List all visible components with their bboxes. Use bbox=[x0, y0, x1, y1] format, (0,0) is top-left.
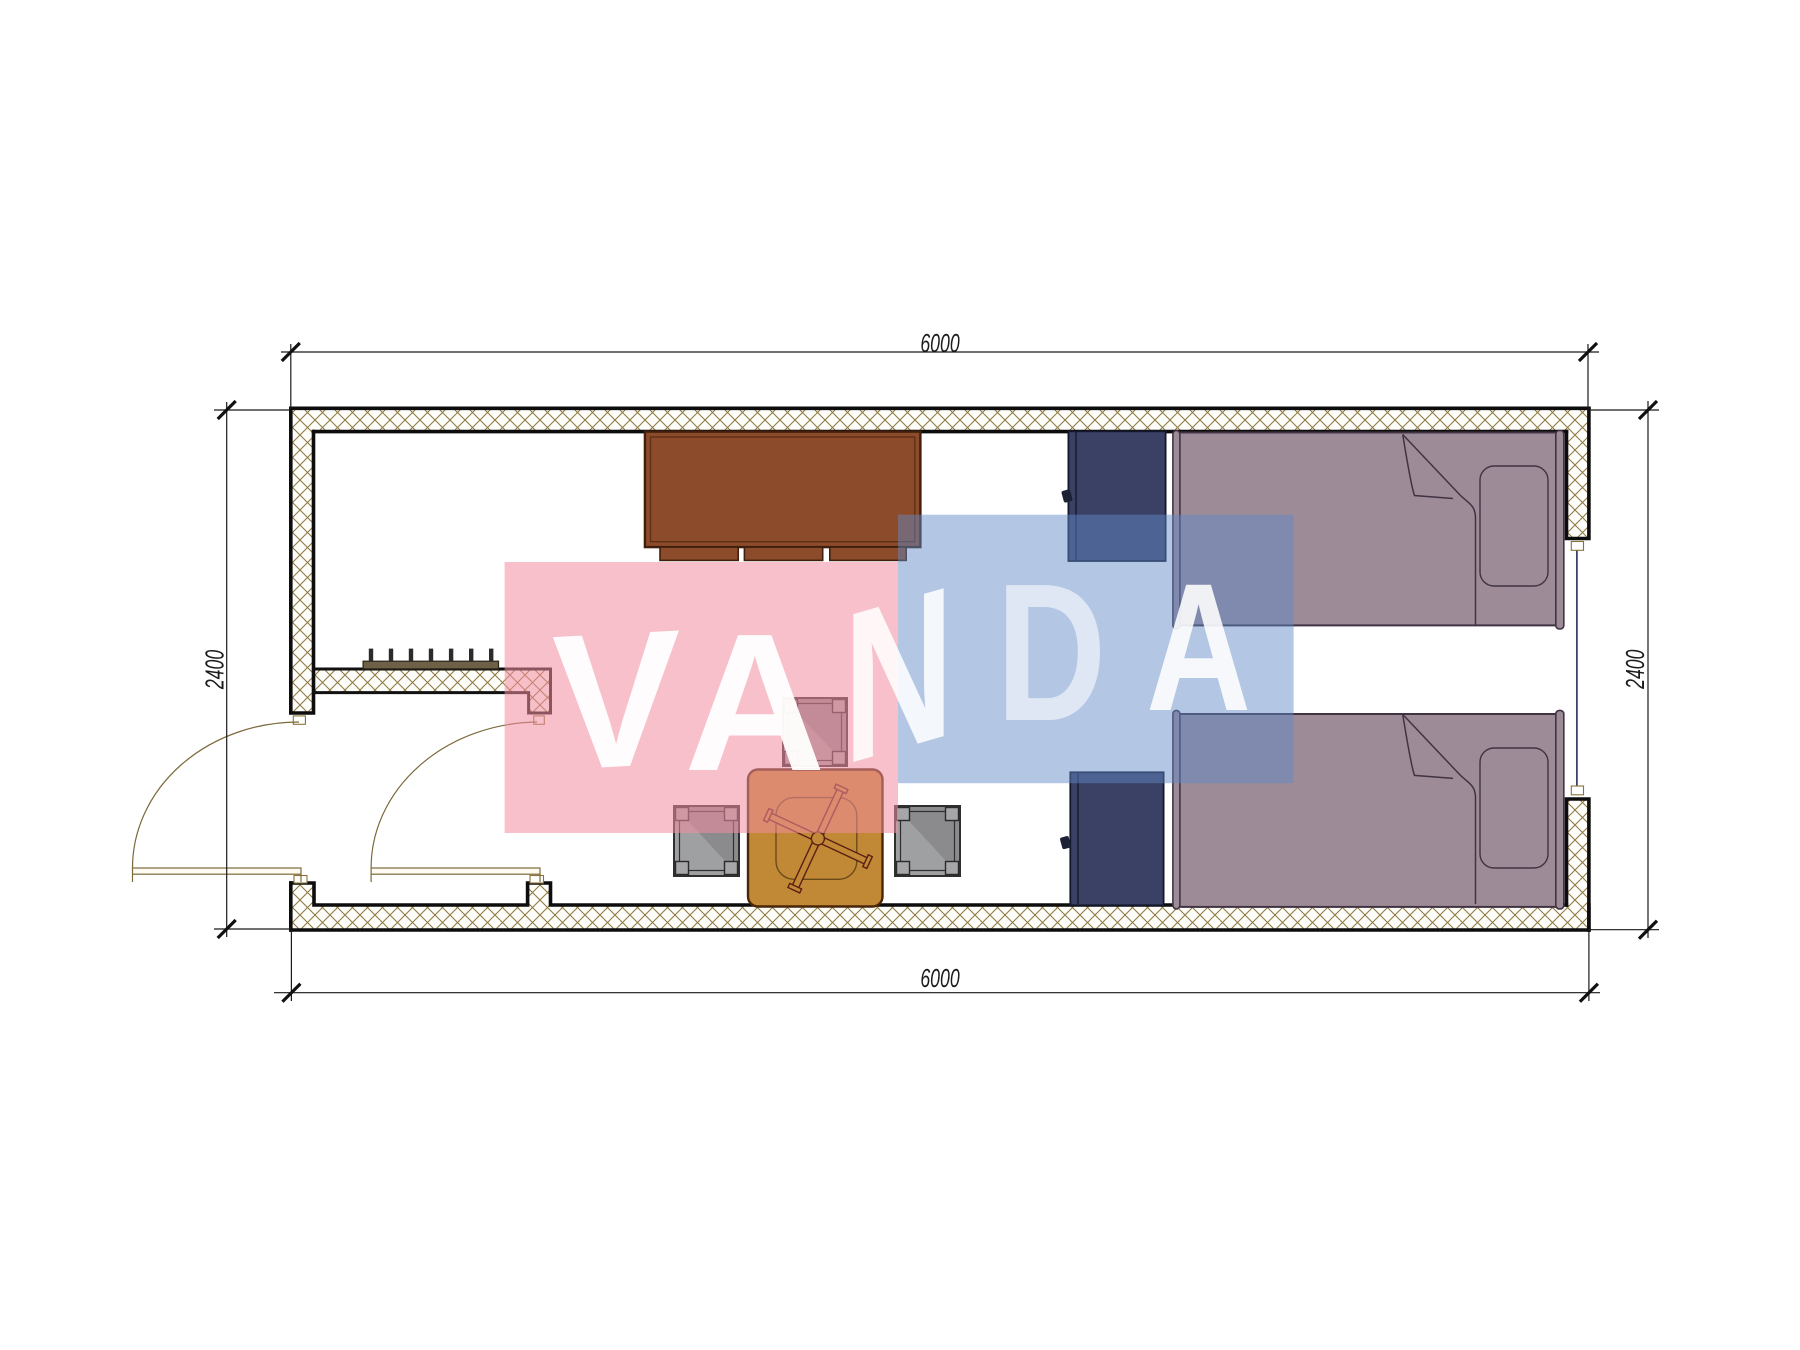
svg-text:6000: 6000 bbox=[920, 964, 960, 993]
svg-text:6000: 6000 bbox=[920, 329, 960, 358]
svg-text:V: V bbox=[552, 588, 681, 811]
svg-text:2400: 2400 bbox=[1621, 649, 1650, 690]
svg-text:2400: 2400 bbox=[200, 649, 229, 690]
svg-text:A: A bbox=[1146, 545, 1251, 748]
svg-text:N: N bbox=[843, 539, 954, 811]
svg-text:D: D bbox=[996, 544, 1106, 763]
svg-text:A: A bbox=[684, 593, 826, 812]
